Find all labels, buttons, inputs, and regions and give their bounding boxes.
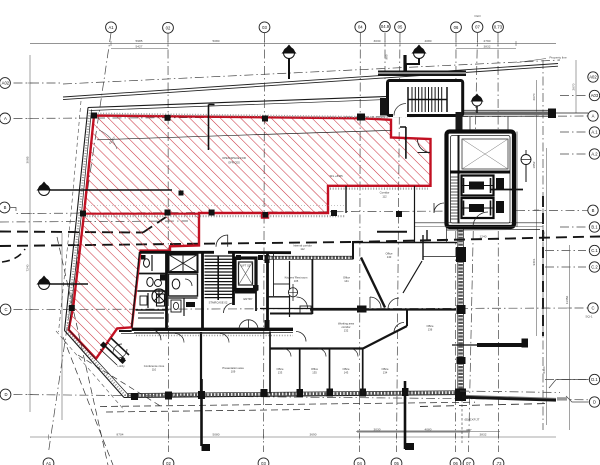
svg-text:03: 03 — [261, 461, 266, 465]
svg-text:A1: A1 — [108, 25, 114, 30]
svg-text:143: 143 — [344, 371, 349, 375]
svg-text:A.1: A.1 — [591, 130, 598, 135]
svg-text:4080: 4080 — [425, 39, 432, 43]
svg-text:B: B — [4, 205, 7, 210]
svg-text:4080: 4080 — [425, 427, 432, 431]
svg-text:7240: 7240 — [26, 264, 30, 271]
svg-text:OPEN SPACE FOR: OPEN SPACE FOR — [222, 156, 246, 160]
svg-text:110: 110 — [152, 368, 157, 372]
svg-text:112: 112 — [300, 247, 305, 251]
svg-text:112: 112 — [382, 195, 387, 199]
svg-text:A02: A02 — [589, 75, 597, 80]
svg-text:1852: 1852 — [532, 161, 536, 168]
svg-text:A: A — [4, 116, 7, 121]
svg-text:05: 05 — [398, 25, 403, 30]
svg-text:04.9: 04.9 — [381, 24, 390, 29]
svg-text:8704: 8704 — [117, 433, 124, 437]
svg-text:2670: 2670 — [532, 93, 536, 100]
svg-text:07: 07 — [475, 25, 480, 30]
svg-text:02: 02 — [166, 461, 171, 465]
svg-text:Corridor: Corridor — [380, 191, 390, 195]
svg-text:141: 141 — [344, 279, 349, 283]
svg-text:Internal corridor: Internal corridor — [293, 244, 312, 248]
svg-text:05: 05 — [394, 461, 399, 465]
svg-text:Office: Office — [427, 324, 434, 328]
svg-text:C: C — [591, 306, 594, 311]
svg-text:04: 04 — [358, 25, 363, 30]
svg-text:9301: 9301 — [532, 258, 536, 265]
svg-text:105: 105 — [294, 279, 299, 283]
svg-text:B: B — [592, 208, 595, 213]
svg-text:C.2: C.2 — [591, 265, 598, 270]
svg-text:A: A — [592, 114, 595, 119]
svg-text:134: 134 — [383, 371, 388, 375]
svg-text:3690: 3690 — [310, 433, 317, 437]
svg-text:Office: Office — [386, 252, 393, 256]
svg-text:3085: 3085 — [26, 156, 30, 163]
svg-text:3030: 3030 — [374, 39, 381, 43]
svg-text:C: C — [4, 307, 7, 312]
svg-text:Office: Office — [343, 367, 350, 371]
svg-text:Office: Office — [382, 367, 389, 371]
svg-text:OFFICES: OFFICES — [228, 160, 240, 164]
svg-text:Office: Office — [311, 367, 318, 371]
svg-text:(B) EXP.JT: (B) EXP.JT — [464, 418, 479, 422]
svg-text:LIFT 02: LIFT 02 — [241, 263, 251, 267]
svg-text:Property line: Property line — [549, 56, 567, 60]
svg-text:2790: 2790 — [484, 39, 491, 43]
svg-text:109: 109 — [231, 370, 236, 374]
svg-text:07: 07 — [466, 461, 471, 465]
svg-text:140: 140 — [387, 255, 392, 259]
svg-text:corridor: corridor — [341, 325, 350, 329]
svg-text:C.1: C.1 — [591, 248, 598, 253]
svg-text:06: 06 — [453, 461, 458, 465]
svg-text:03: 03 — [262, 25, 267, 30]
svg-text:3832: 3832 — [480, 433, 487, 437]
svg-text:OsO: OsO — [474, 14, 481, 18]
svg-text:5080: 5080 — [213, 39, 220, 43]
svg-text:Presentation area: Presentation area — [222, 366, 244, 370]
svg-text:5427: 5427 — [136, 45, 143, 49]
svg-text:3832: 3832 — [484, 45, 491, 49]
svg-text:11356: 11356 — [565, 296, 569, 305]
svg-text:Conference zone: Conference zone — [144, 364, 165, 368]
svg-text:136: 136 — [428, 328, 433, 332]
svg-text:02: 02 — [166, 25, 171, 30]
svg-text:Office: Office — [343, 276, 350, 280]
svg-text:687: 687 — [466, 428, 471, 432]
svg-text:.73: .73 — [496, 461, 502, 465]
svg-text:B.1: B.1 — [591, 225, 598, 230]
svg-text:Working area: Working area — [338, 322, 354, 326]
svg-text:Kitchen/ Rest room: Kitchen/ Rest room — [285, 276, 309, 280]
svg-text:STAIRCASE 02: STAIRCASE 02 — [209, 301, 228, 305]
svg-text:A02: A02 — [2, 81, 10, 86]
svg-text:D: D — [593, 400, 596, 405]
svg-text:133: 133 — [278, 371, 283, 375]
svg-text:A03: A03 — [591, 93, 599, 98]
svg-text:135: 135 — [312, 371, 317, 375]
svg-text:0.73: 0.73 — [494, 25, 503, 30]
svg-text:A1: A1 — [46, 461, 52, 465]
svg-text:132: 132 — [344, 329, 349, 333]
svg-text:ENTRY: ENTRY — [243, 297, 252, 301]
svg-text:SQ-1: SQ-1 — [585, 314, 593, 318]
svg-text:6300: 6300 — [542, 366, 546, 373]
svg-text:3030: 3030 — [374, 427, 381, 431]
svg-text:04: 04 — [357, 461, 362, 465]
svg-text:1240: 1240 — [480, 235, 487, 239]
svg-text:SFL +8465: SFL +8465 — [329, 174, 343, 178]
svg-text:Office: Office — [277, 367, 284, 371]
svg-text:D: D — [4, 392, 7, 397]
svg-text:06: 06 — [454, 25, 459, 30]
svg-text:A.2: A.2 — [591, 152, 598, 157]
svg-text:5080: 5080 — [213, 433, 220, 437]
svg-text:960: 960 — [385, 54, 389, 59]
svg-text:Lobby: Lobby — [117, 364, 125, 368]
svg-text:2670: 2670 — [572, 83, 576, 90]
svg-text:D.1: D.1 — [591, 377, 598, 382]
svg-text:5985: 5985 — [136, 39, 143, 43]
